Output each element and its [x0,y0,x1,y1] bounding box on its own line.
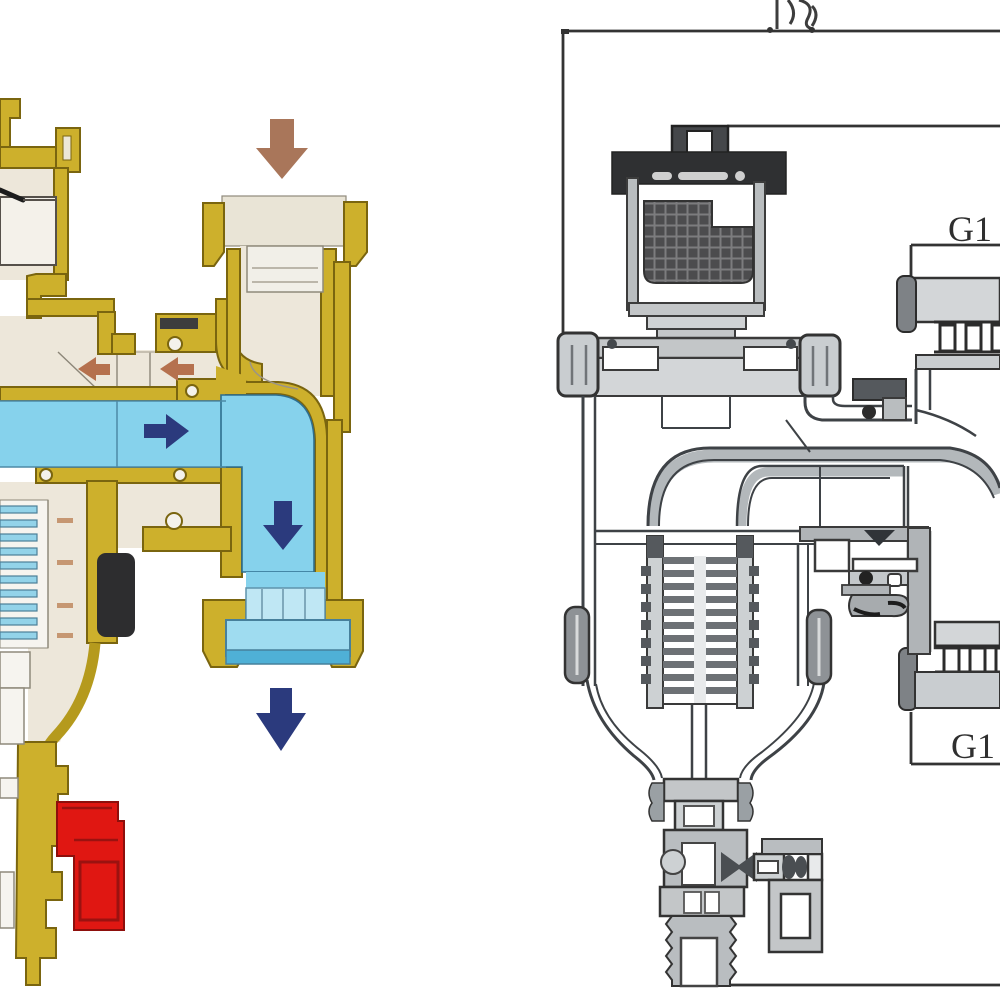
svg-text:G1: G1 [948,209,992,249]
svg-text:G1: G1 [951,726,995,766]
